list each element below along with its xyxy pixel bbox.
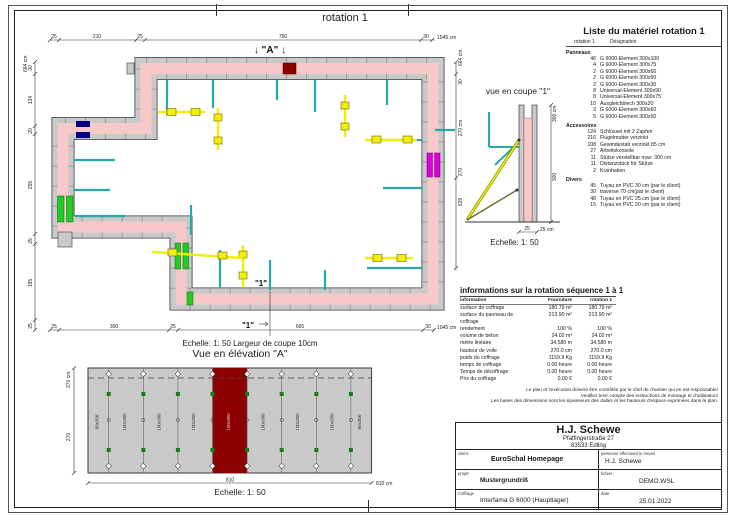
info-value-fourniture: 0.00 heure: [532, 369, 572, 376]
info-value-rotation: 1159.9 Kg: [572, 355, 612, 362]
material-rows-panneaux: 46 G 6000-Element 300x100 4 G 6000-Eleme…: [566, 56, 722, 120]
info-label: surface de coffrage: [460, 305, 532, 312]
elevation-direction-marker: ↓ "A" ↓: [254, 45, 286, 56]
info-col-fourniture: Fourniture: [532, 298, 572, 303]
dim-label: 810: [226, 478, 235, 484]
dim-total: 1045 cm: [437, 35, 456, 41]
title-block-row-client: client: EuroSchal Homepage personne effe…: [456, 450, 721, 470]
info-row: surface du panneau de coffrage 213.90 m²…: [460, 312, 616, 326]
dim-label: 270 cm: [458, 120, 464, 136]
dim-label: 210: [93, 34, 102, 40]
section-marker-1b: "1": [242, 321, 254, 330]
client-cell: client: EuroSchal Homepage: [456, 450, 599, 469]
info-value-fourniture: 100 %: [532, 326, 572, 333]
elevation-view-title: Vue en élévation "A": [60, 348, 420, 360]
info-value-rotation: 270.0 cm: [572, 348, 612, 355]
project-value: Mustergrundriß: [480, 477, 528, 484]
panel-label: 100x300: [295, 413, 300, 431]
material-list-header: rotation 1 Désignation: [566, 39, 722, 47]
info-row: surface de coffrage 180.79 m² 180.79 m²: [460, 305, 616, 312]
info-value-fourniture: 270.0 cm: [532, 348, 572, 355]
info-value-rotation: 0.00 heure: [572, 362, 612, 369]
formwork-cell: Coffrage Interfama G 6000 (Hauptlager): [456, 490, 599, 509]
material-col-designation: Désignation: [610, 39, 636, 45]
info-row: Prix du coffrage 0.00 € 0.00 €: [460, 376, 616, 383]
dim-label: 300: [552, 173, 558, 182]
info-value-rotation: 180.79 m²: [572, 305, 612, 312]
file-cell: fichier DEMO.WSL: [599, 470, 721, 489]
material-rows-divers: 45 Tuyau en PVC 30 cm (par le client) 30…: [566, 183, 722, 209]
dim-label: 25: [137, 34, 143, 40]
dim-total: 300 cm: [552, 106, 558, 122]
title-block: H.J. Schewe Pfaffingerstraße 27 83533 Ed…: [455, 422, 722, 510]
info-row: poids du coffrage 1159.9 Kg 1159.9 Kg: [460, 355, 616, 362]
panel-label: 100x300: [226, 413, 231, 431]
info-value-rotation: 213.90 m²: [572, 312, 612, 326]
material-row: 5 G 6000-Element 300x50: [566, 114, 722, 120]
dim-label: 629: [458, 198, 464, 207]
floor-plan-view: 25 210 25 750 30 1045 cm 25 300 25 665 3…: [15, 20, 465, 350]
dim-label: 25: [28, 238, 34, 244]
worker-label: personne effectuant le travail: [601, 451, 655, 456]
material-rows-accessoires: 124 Schlüssel mit 2 Zapfen 216 Flügelmut…: [566, 129, 722, 174]
date-value: 25.01.2022: [639, 498, 672, 505]
dim-total: 25 cm: [540, 227, 554, 233]
dim-label: 665: [296, 324, 305, 330]
dim-label: 25: [51, 324, 57, 330]
info-value-fourniture: 24.02 m³: [532, 333, 572, 340]
panel-label: 60x300: [357, 414, 362, 429]
info-col-rotation: rotation 1: [572, 298, 612, 303]
info-label: temps de coffrage: [460, 362, 532, 369]
title-block-row-project: projet: Mustergrundriß fichier DEMO.WSL: [456, 470, 721, 490]
info-value-rotation: 0.00 heure: [572, 369, 612, 376]
dim-total: 664 cm: [458, 50, 464, 66]
material-qty: 15: [566, 202, 596, 208]
info-value-rotation: 34.580 m: [572, 340, 612, 347]
highlight-panel-red: [283, 63, 296, 74]
section-wall: [519, 105, 537, 222]
info-value-rotation: 24.02 m³: [572, 333, 612, 340]
fold-mark: [368, 500, 369, 512]
info-title: informations sur la rotation séquence 1 …: [460, 286, 616, 297]
material-label: Kranhaken: [600, 168, 625, 174]
dim-label: 270: [66, 433, 72, 442]
info-header: information Fourniture rotation 1: [460, 297, 616, 305]
info-row: Temps de décoffrage 0.00 heure 0.00 heur…: [460, 369, 616, 376]
disclaimer-line: Les bases des dimensions sont les épaiss…: [430, 399, 718, 405]
date-label: date: [601, 491, 609, 496]
material-list: Liste du matériel rotation 1 rotation 1 …: [566, 26, 722, 209]
info-row: mètre linéaire 34.580 m 34.580 m: [460, 340, 616, 347]
material-qty: 5: [566, 114, 596, 120]
info-value-fourniture: 0.00 heure: [532, 362, 572, 369]
info-row: temps de coffrage 0.00 heure 0.00 heure: [460, 362, 616, 369]
title-block-header: H.J. Schewe Pfaffingerstraße 27 83533 Ed…: [456, 423, 721, 450]
info-value-fourniture: 213.90 m²: [532, 312, 572, 326]
dim-label: 25: [28, 323, 34, 329]
info-col-information: information: [460, 298, 532, 303]
material-label: G 6000-Element 300x50: [600, 114, 656, 120]
dim-label: 25: [170, 324, 176, 330]
dim-label: 30: [423, 34, 429, 40]
worker-cell: personne effectuant le travail H.J. Sche…: [599, 450, 721, 469]
project-cell: projet: Mustergrundriß: [456, 470, 599, 489]
panel-label: 60x300: [94, 414, 99, 429]
dim-total: 1045 cm: [437, 325, 456, 331]
info-value-rotation: 0.00 €: [572, 376, 612, 383]
file-value: DEMO.WSL: [639, 478, 674, 485]
dim-label: 270: [458, 168, 464, 177]
material-list-title: Liste du matériel rotation 1: [566, 26, 722, 37]
rotation-info-table: informations sur la rotation séquence 1 …: [460, 286, 616, 383]
info-label: rendement: [460, 326, 532, 333]
dim-label: 25: [524, 226, 530, 232]
section-platform: [489, 112, 519, 165]
material-row: 2 Kranhaken: [566, 168, 722, 174]
dim-label: 300: [110, 324, 119, 330]
info-row: hauteur de voile 270.0 cm 270.0 cm: [460, 348, 616, 355]
panel-label: 100x300: [122, 413, 127, 431]
section-marker-1: "1": [255, 279, 267, 288]
drawing-sheet: rotation 1: [0, 0, 730, 516]
formwork-label: Coffrage: [458, 491, 474, 496]
title-block-row-formwork: Coffrage Interfama G 6000 (Hauptlager) d…: [456, 490, 721, 509]
panel-label: 100x300: [191, 413, 196, 431]
material-row: 15 Tuyau en PVC 20 cm (par le client): [566, 202, 722, 208]
dim-total: 270 cm: [66, 372, 72, 388]
panel-label: 100x300: [330, 413, 335, 431]
company-name: H.J. Schewe: [456, 423, 721, 436]
info-value-rotation: 100 %: [572, 326, 612, 333]
info-label: Temps de décoffrage: [460, 369, 532, 376]
info-label: surface du panneau de coffrage: [460, 312, 532, 326]
panel-label: 100x300: [260, 413, 265, 431]
info-value-fourniture: 34.580 m: [532, 340, 572, 347]
info-value-fourniture: 180.79 m²: [532, 305, 572, 312]
info-row: volume de béton 24.02 m³ 24.02 m³: [460, 333, 616, 340]
info-row: rendement 100 % 100 %: [460, 326, 616, 333]
dim-label: 20: [28, 128, 34, 134]
dim-label: 750: [279, 34, 288, 40]
material-label: Tuyau en PVC 20 cm (par le client): [600, 202, 681, 208]
info-rows: surface de coffrage 180.79 m² 180.79 m² …: [460, 305, 616, 383]
disclaimer: Le plan et l'exécution doivent être cont…: [430, 388, 718, 405]
dim-label: 255: [28, 181, 34, 190]
dim-label: 195: [28, 279, 34, 288]
info-label: mètre linéaire: [460, 340, 532, 347]
section-props: [467, 139, 521, 221]
dim-label: 25: [51, 34, 57, 40]
dim-label: 134: [28, 96, 34, 105]
material-qty: 2: [566, 168, 596, 174]
info-value-fourniture: 1159.9 Kg: [532, 355, 572, 362]
info-value-fourniture: 0.00 €: [532, 376, 572, 383]
dim-total: 684 cm: [23, 56, 29, 72]
section-view: 300 cm 300 25 25 cm: [465, 82, 575, 242]
wall-loop: [58, 63, 433, 299]
section-scale-caption: Echelle: 1: 50: [462, 238, 567, 247]
date-cell: date 25.01.2022: [599, 490, 721, 509]
dim-label: 30: [425, 324, 431, 330]
company-address2: 83533 Edling: [456, 443, 721, 450]
worker-value: H.J. Schewe: [605, 458, 642, 465]
client-value: EuroSchal Homepage: [456, 456, 598, 463]
info-label: hauteur de voile: [460, 348, 532, 355]
info-label: volume de béton: [460, 333, 532, 340]
info-label: poids du coffrage: [460, 355, 532, 362]
elevation-scale-caption: Echelle: 1: 50: [100, 487, 380, 497]
material-col-qty: rotation 1: [574, 39, 604, 45]
project-label: projet:: [458, 471, 470, 476]
file-label: fichier: [601, 471, 612, 476]
elevation-view: 60x300 100x300 100x300 100x300 100x300 1…: [58, 362, 422, 494]
formwork-value: Interfama G 6000 (Hauptlager): [480, 497, 569, 504]
info-label: Prix du coffrage: [460, 376, 532, 383]
plan-scale-caption: Echelle: 1: 50 Largeur de coupe 10cm: [110, 339, 390, 348]
panel-label: 100x300: [157, 413, 162, 431]
dim-label: 30: [458, 79, 464, 85]
